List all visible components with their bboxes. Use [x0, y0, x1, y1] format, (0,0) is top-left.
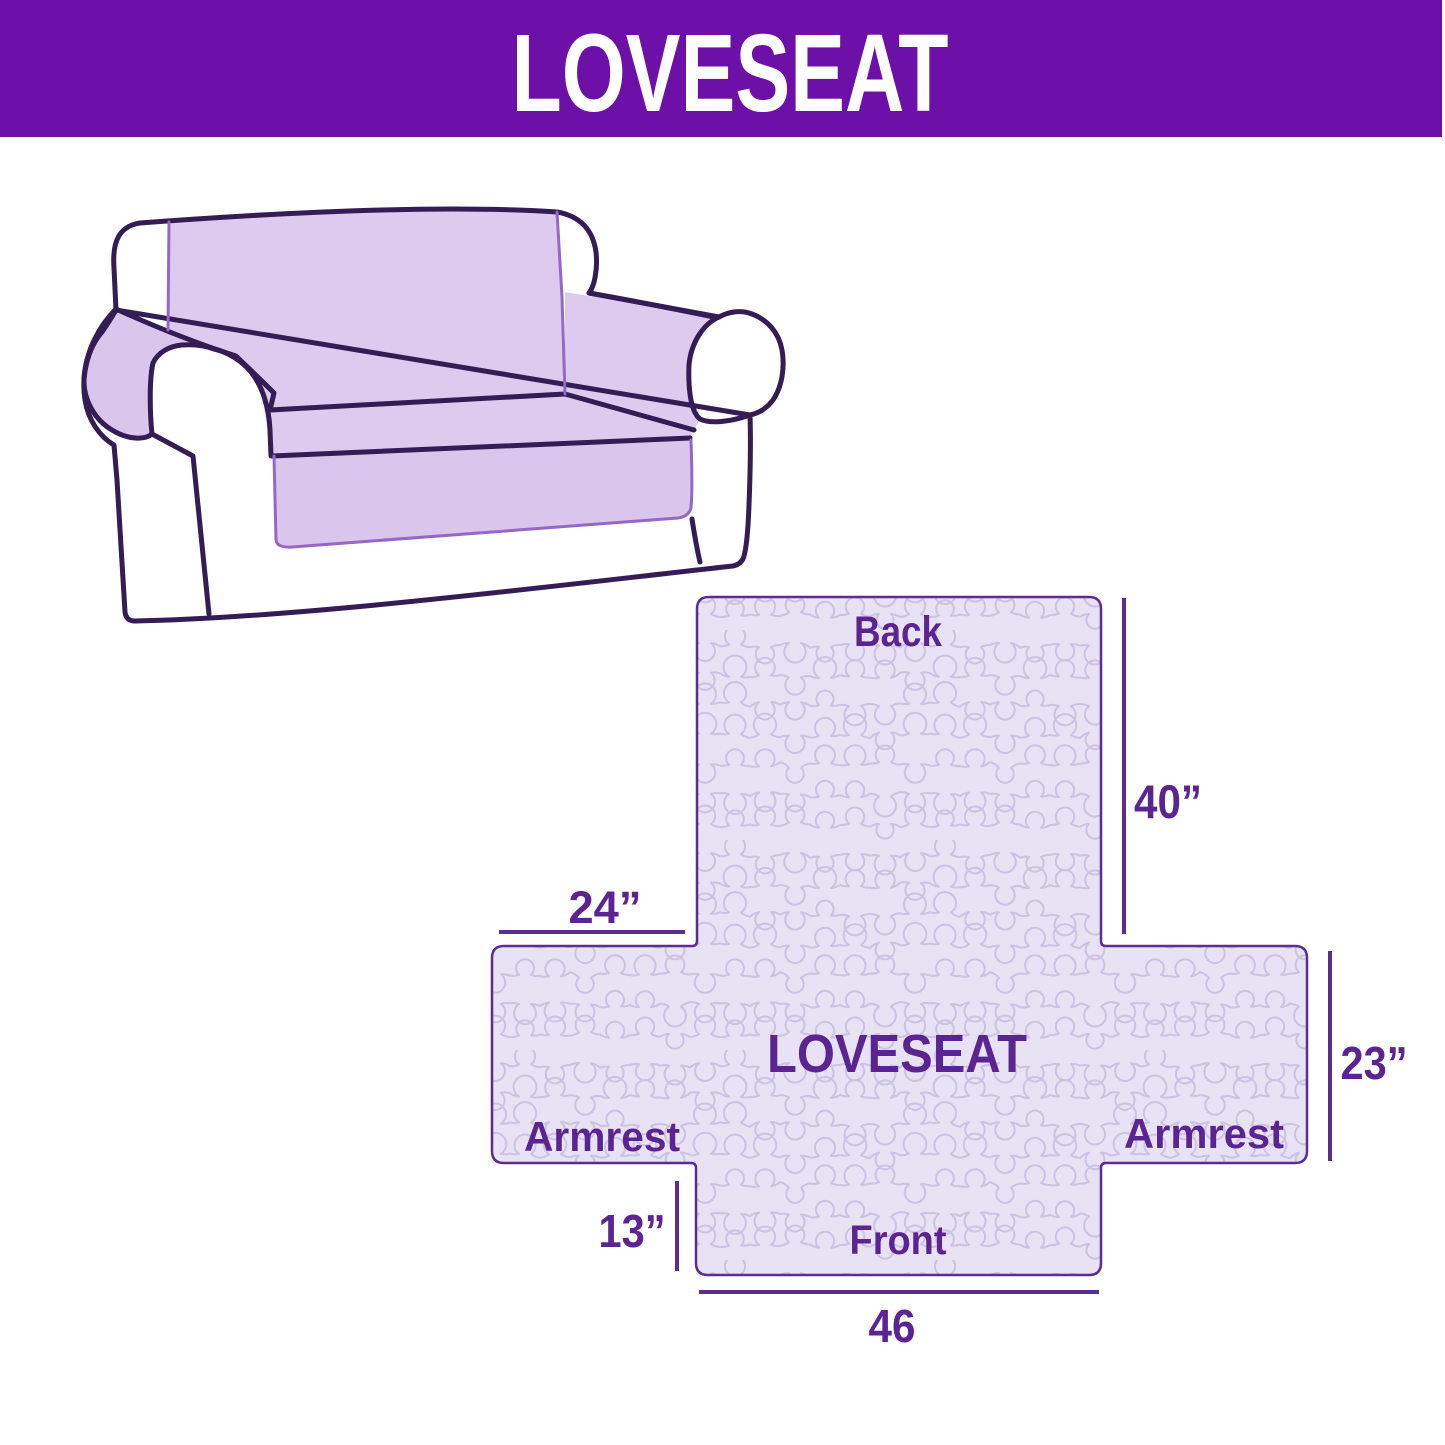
svg-text:23”: 23”: [1341, 1037, 1408, 1089]
svg-text:13”: 13”: [599, 1205, 666, 1257]
svg-text:Front: Front: [850, 1217, 947, 1263]
svg-text:46: 46: [869, 1300, 916, 1352]
svg-text:LOVESEAT: LOVESEAT: [512, 12, 949, 135]
svg-text:24”: 24”: [569, 882, 642, 933]
svg-text:40”: 40”: [1134, 775, 1202, 828]
svg-text:LOVESEAT: LOVESEAT: [767, 1024, 1027, 1084]
svg-text:Armrest: Armrest: [524, 1113, 680, 1160]
svg-text:Back: Back: [854, 608, 942, 656]
svg-text:Armrest: Armrest: [1124, 1110, 1284, 1157]
